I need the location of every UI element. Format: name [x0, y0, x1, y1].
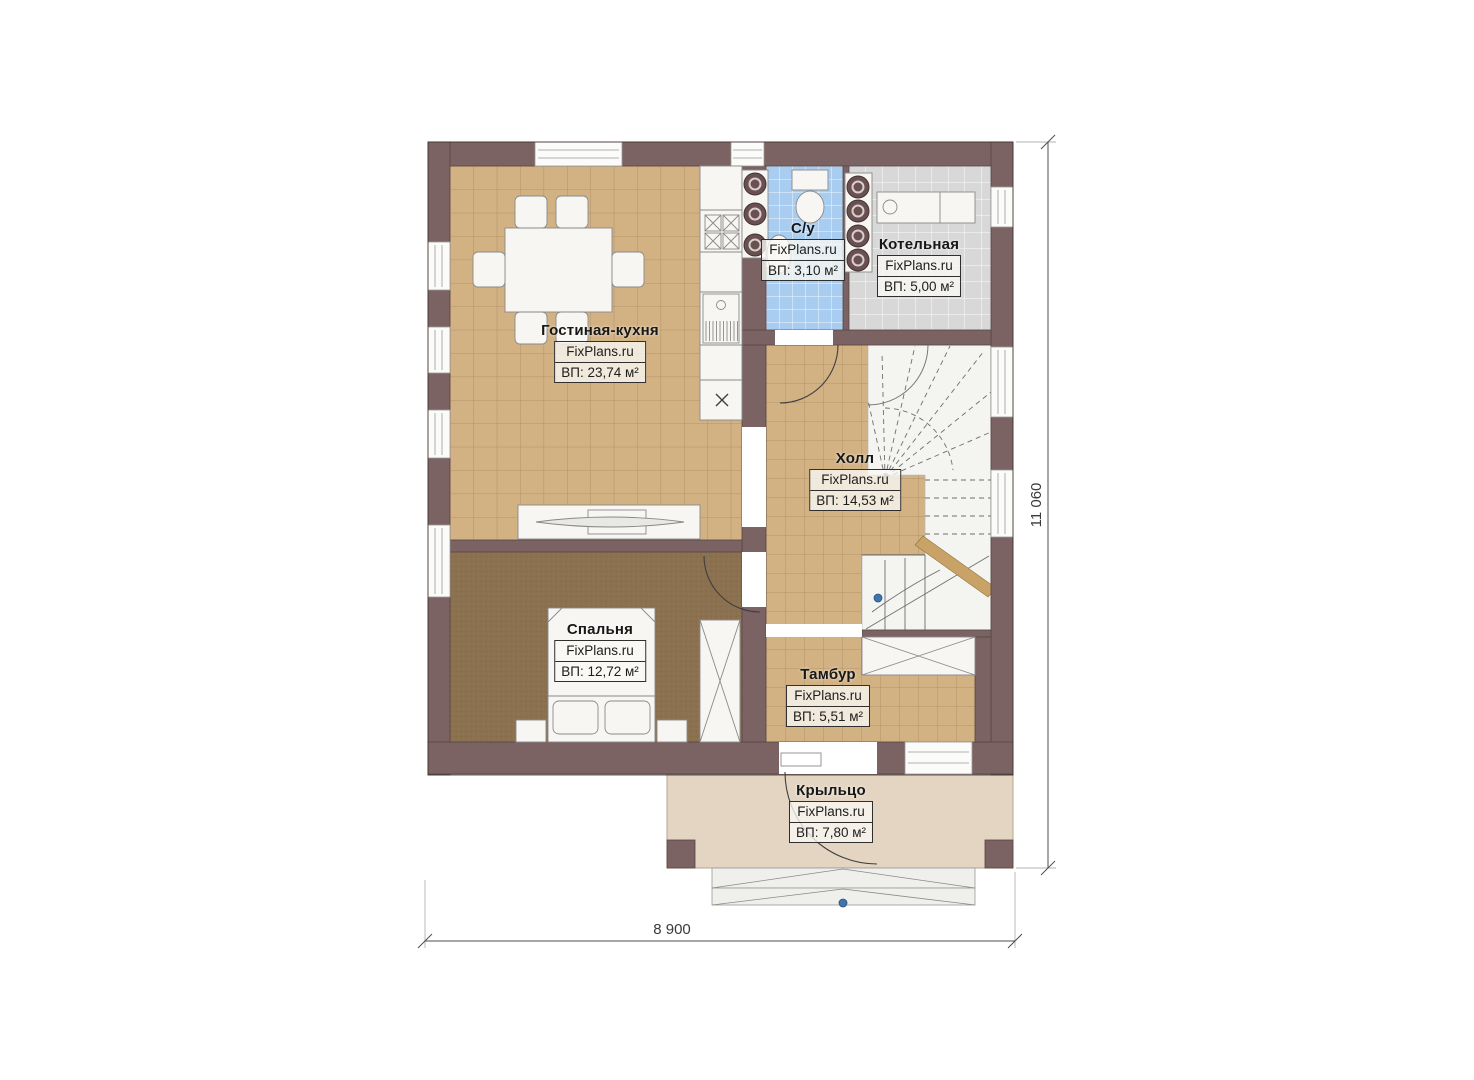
room-area: ВП: 3,10 м²: [762, 260, 844, 281]
window: [991, 470, 1013, 537]
window: [428, 327, 450, 373]
boiler-icon: [877, 192, 975, 223]
room-name: Гостиная-кухня: [541, 322, 659, 339]
dimension-width-label: 8 900: [653, 921, 691, 938]
chair-icon: [515, 196, 547, 228]
room-label-living-kitchen: Гостиная-кухня FixPlans.ru ВП: 23,74 м²: [541, 322, 659, 383]
dimension-height: 11 060: [1016, 135, 1056, 875]
watermark-text: FixPlans.ru: [878, 256, 960, 276]
room-label-boiler: Котельная FixPlans.ru ВП: 5,00 м²: [877, 236, 961, 297]
room-info-box: FixPlans.ru ВП: 23,74 м²: [554, 341, 646, 383]
watermark-text: FixPlans.ru: [790, 802, 872, 822]
window: [428, 525, 450, 597]
wall-vestibule-east: [975, 637, 991, 742]
room-info-box: FixPlans.ru ВП: 5,51 м²: [786, 685, 870, 727]
kitchen-counter: [700, 166, 742, 420]
window: [991, 187, 1013, 227]
wardrobe-icon: [862, 637, 975, 675]
pillow-icon: [605, 701, 650, 734]
pillow-icon: [553, 701, 598, 734]
watermark-text: FixPlans.ru: [787, 686, 869, 706]
porch-post: [667, 840, 695, 868]
nightstand-icon: [657, 720, 687, 742]
tv-cabinet: [518, 505, 700, 539]
room-info-box: FixPlans.ru ВП: 12,72 м²: [554, 640, 646, 682]
wall-living-bedroom: [450, 540, 742, 552]
room-name: Котельная: [877, 236, 961, 253]
room-area: ВП: 23,74 м²: [555, 362, 645, 383]
window: [428, 410, 450, 458]
wardrobe-icon: [700, 620, 740, 742]
marker-dot: [839, 899, 847, 907]
passage-living-hall: [742, 427, 766, 527]
room-info-box: FixPlans.ru ВП: 14,53 м²: [809, 469, 901, 511]
room-label-bathroom: С/у FixPlans.ru ВП: 3,10 м²: [761, 220, 845, 281]
vent-stack-icon: [845, 173, 872, 272]
doorway-bathroom: [775, 330, 833, 345]
chair-icon: [612, 252, 644, 287]
watermark-text: FixPlans.ru: [762, 240, 844, 260]
room-info-box: FixPlans.ru ВП: 5,00 м²: [877, 255, 961, 297]
marker-dot: [874, 594, 882, 602]
room-area: ВП: 14,53 м²: [810, 490, 900, 511]
chair-icon: [556, 196, 588, 228]
window: [428, 242, 450, 290]
room-info-box: FixPlans.ru ВП: 7,80 м²: [789, 801, 873, 843]
room-name: Крыльцо: [789, 782, 873, 799]
opening-hall-vestibule: [766, 624, 862, 637]
dimension-height-label: 11 060: [1028, 483, 1045, 528]
window: [905, 742, 972, 774]
room-label-bedroom: Спальня FixPlans.ru ВП: 12,72 м²: [554, 621, 646, 682]
room-label-hall: Холл FixPlans.ru ВП: 14,53 м²: [809, 450, 901, 511]
doorway-bedroom: [742, 552, 766, 607]
watermark-text: FixPlans.ru: [555, 641, 645, 661]
room-area: ВП: 5,51 м²: [787, 706, 869, 727]
room-name: Спальня: [554, 621, 646, 638]
porch-post: [985, 840, 1013, 868]
room-label-vestibule: Тамбур FixPlans.ru ВП: 5,51 м²: [786, 666, 870, 727]
chair-icon: [473, 252, 505, 287]
window: [991, 347, 1013, 417]
floor-plan: 8 900 11 060 Гостиная-кухня FixPlans.ru …: [0, 0, 1474, 1080]
room-label-porch: Крыльцо FixPlans.ru ВП: 7,80 м²: [789, 782, 873, 843]
room-name: Холл: [809, 450, 901, 467]
room-area: ВП: 12,72 м²: [555, 661, 645, 682]
watermark-text: FixPlans.ru: [555, 342, 645, 362]
room-name: С/у: [761, 220, 845, 237]
entrance-door-leaf: [781, 753, 821, 766]
watermark-text: FixPlans.ru: [810, 470, 900, 490]
room-info-box: FixPlans.ru ВП: 3,10 м²: [761, 239, 845, 281]
floor-plan-drawing: 8 900 11 060: [0, 0, 1474, 1080]
nightstand-icon: [516, 720, 546, 742]
wall-hall-vestibule: [862, 630, 991, 637]
window: [535, 142, 622, 166]
room-name: Тамбур: [786, 666, 870, 683]
room-area: ВП: 5,00 м²: [878, 276, 960, 297]
window: [731, 142, 764, 166]
room-area: ВП: 7,80 м²: [790, 822, 872, 843]
